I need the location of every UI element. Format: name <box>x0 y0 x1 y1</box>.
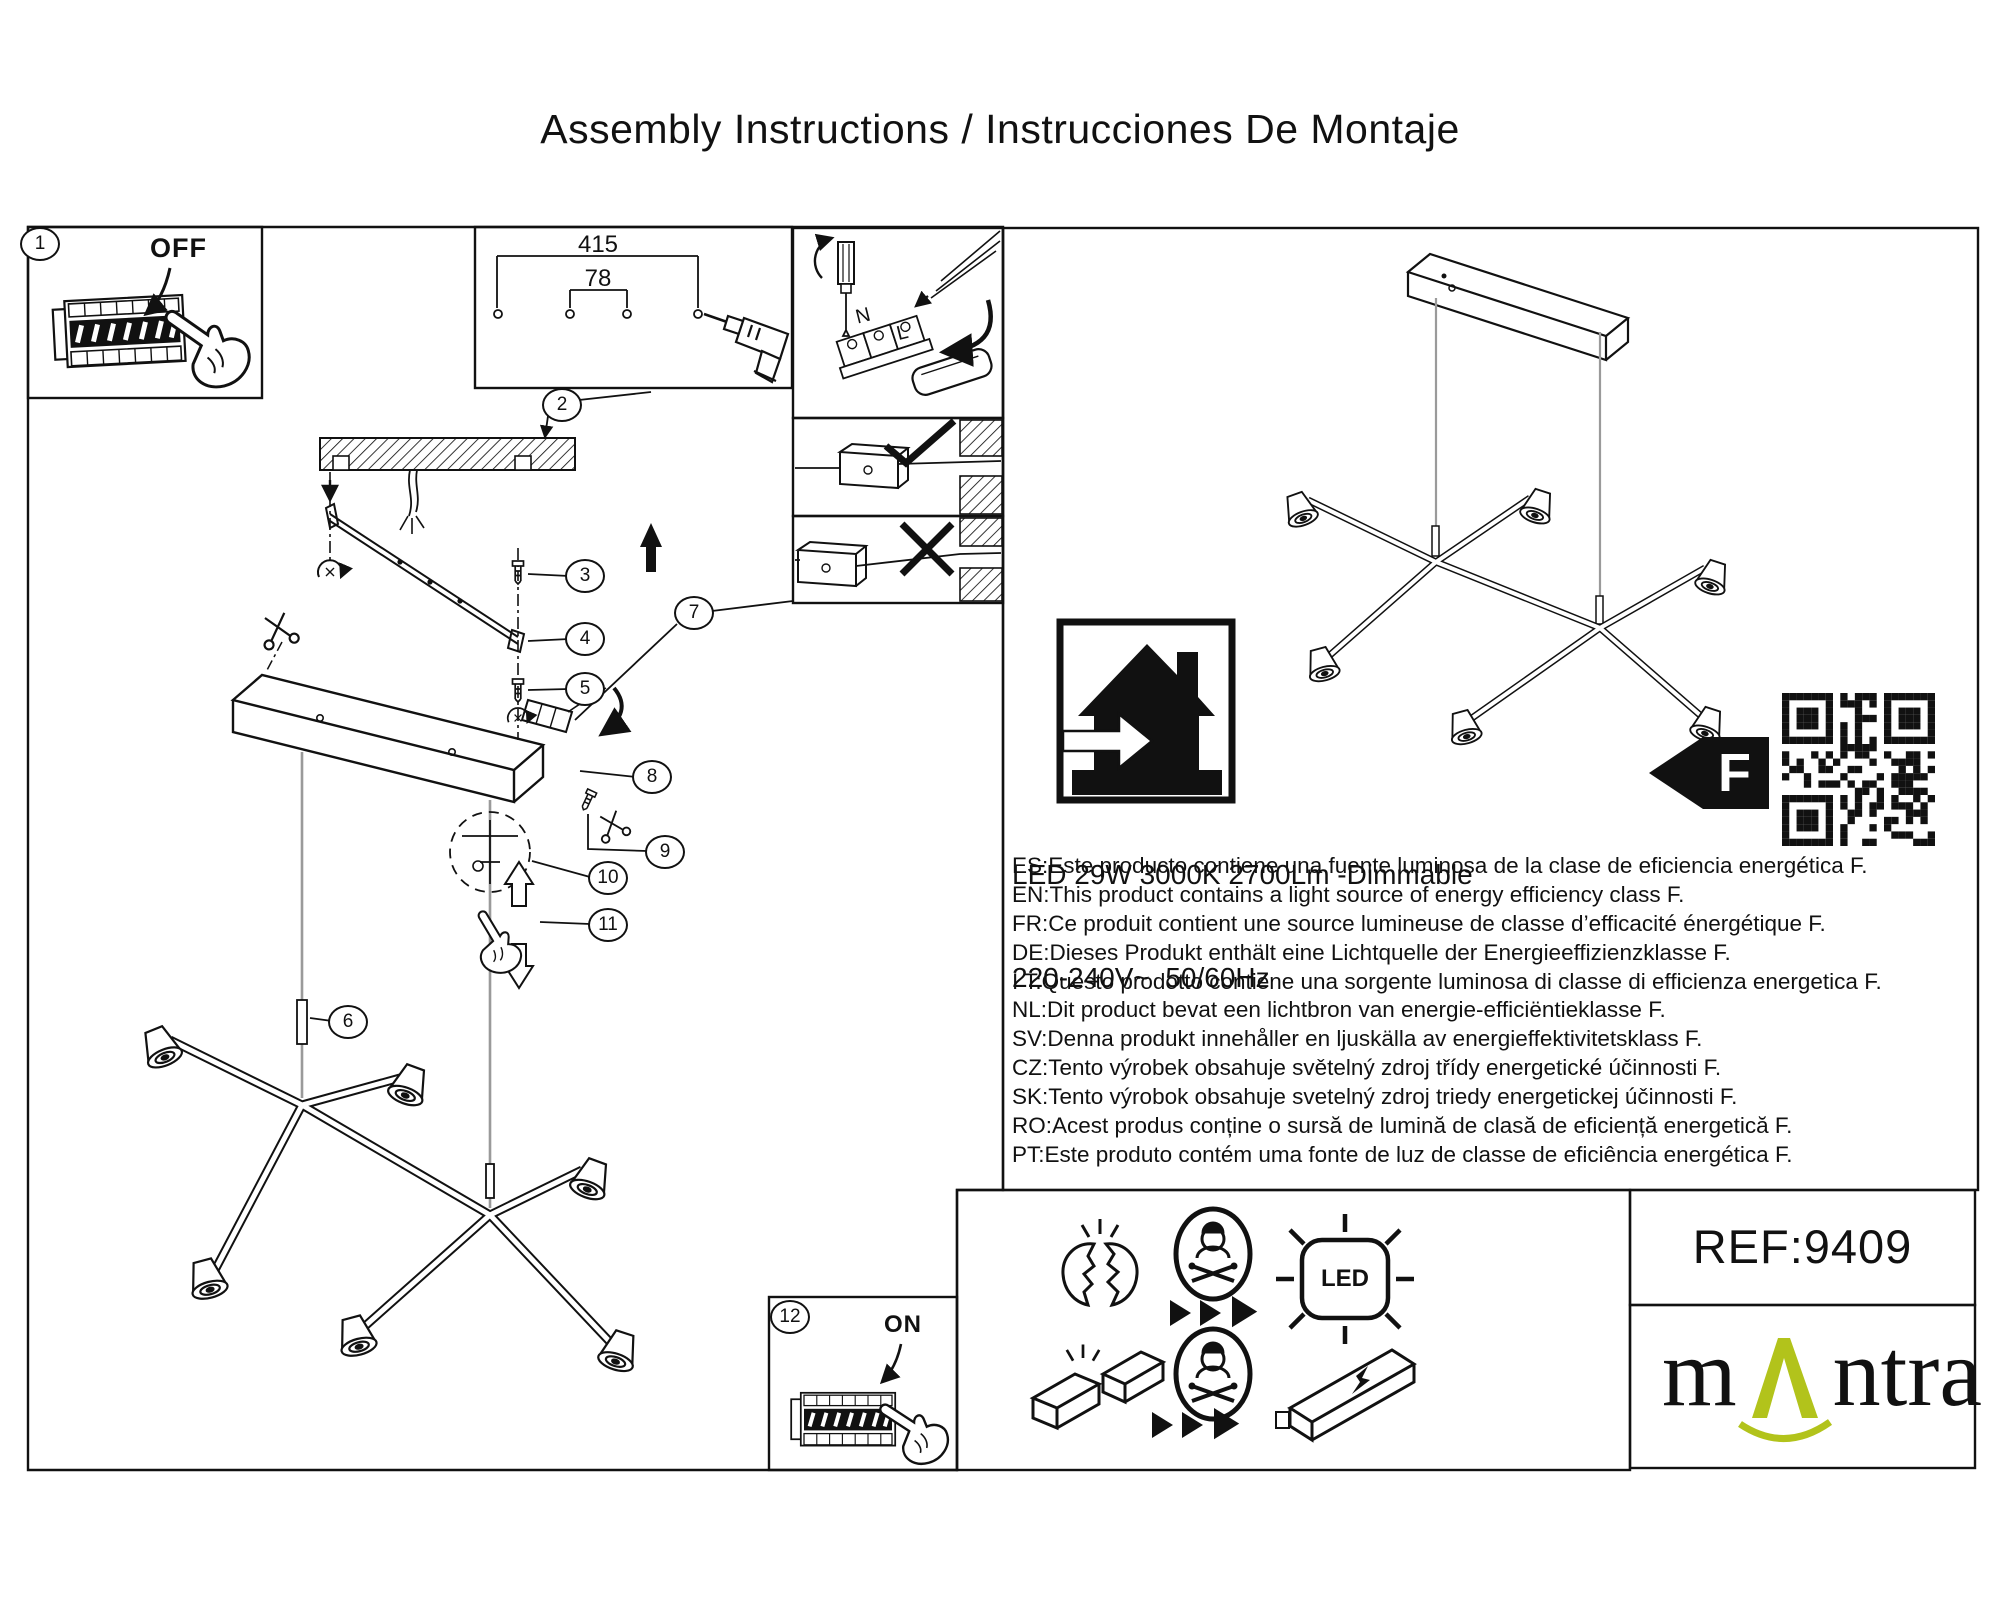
connector-box-icon <box>840 444 908 488</box>
lang-line-cz: CZ:Tento výrobek obsahuje světelný zdroj… <box>1012 1054 1967 1083</box>
assembly-diagram-panel-border <box>28 227 1003 1470</box>
suspension-cables <box>297 752 533 1208</box>
screwdriver-icon <box>815 238 854 336</box>
dimension-inner: 78 <box>578 264 618 294</box>
callout-4-badge: 4 <box>565 622 605 656</box>
lang-line-sv: SV:Denna produkt innehåller en ljuskälla… <box>1012 1025 1967 1054</box>
cable-rod-left <box>297 1000 307 1044</box>
lang-line-sk: SK:Tento výrobok obsahuje svetelný zdroj… <box>1012 1083 1967 1112</box>
reference-number: REF:9409 <box>1630 1190 1975 1305</box>
energy-statements: ES:Este producto contiene una fuente lum… <box>1012 852 1967 1170</box>
step-12-badge: 12 <box>770 1300 810 1334</box>
lang-line-es: ES:Este producto contiene una fuente lum… <box>1012 852 1967 881</box>
brand-prefix: m <box>1662 1330 1737 1416</box>
terminal-cover-icon <box>910 346 995 397</box>
qr-code-icon <box>1782 693 1935 846</box>
lang-line-it: I T:Questo prodotto contiene una sorgent… <box>1012 968 1967 997</box>
wrong-mounting-inset <box>795 518 1002 601</box>
callout-7-badge: 7 <box>674 596 714 630</box>
driver-box-icon <box>1276 1350 1414 1440</box>
brand-logo: m ntra <box>1662 1330 1982 1416</box>
callout-9-badge: 9 <box>645 835 685 869</box>
x-mark-icon <box>902 524 952 574</box>
check-mark-icon <box>886 421 954 463</box>
drill-icon <box>704 314 788 382</box>
product-render <box>1280 254 1732 747</box>
qualified-person-icon <box>1176 1329 1250 1419</box>
up-arrow-icon <box>640 523 662 572</box>
off-label: OFF <box>150 232 207 266</box>
callout-2-badge: 2 <box>542 388 582 422</box>
connector-box-icon <box>798 542 866 586</box>
broken-lamp-icon <box>1063 1219 1137 1305</box>
wiring-inset-drawing <box>815 231 1000 398</box>
brand-suffix: ntra <box>1833 1330 1982 1416</box>
drill-template-panel-border <box>475 227 792 388</box>
mounting-bracket-drawing <box>318 472 528 740</box>
broken-driver-icon <box>1033 1345 1163 1429</box>
callout-8-badge: 8 <box>632 760 672 794</box>
lang-line-de: DE:Dieses Produkt enthält eine Lichtquel… <box>1012 939 1967 968</box>
callout-10-badge: 10 <box>588 861 628 895</box>
on-label: ON <box>884 1310 922 1340</box>
lang-line-ro: RO:Acest produs conține o sursă de lumin… <box>1012 1112 1967 1141</box>
led-icon-label: LED <box>1302 1240 1388 1318</box>
step-1-badge: 1 <box>20 227 60 261</box>
drill-template-drawing <box>494 256 788 382</box>
correct-mounting-inset <box>795 420 1002 514</box>
lang-line-nl: NL:Dit product bevat een lichtbron van e… <box>1012 996 1967 1025</box>
callout-11-badge: 11 <box>588 908 628 942</box>
callout-5-badge: 5 <box>565 672 605 706</box>
lang-line-en: EN:This product contains a light source … <box>1012 881 1967 910</box>
lang-line-fr: FR:Ce produit contient une source lumine… <box>1012 910 1967 939</box>
page-title: Assembly Instructions / Instrucciones De… <box>0 104 2000 155</box>
fixture-drawing <box>137 1023 642 1375</box>
indoor-use-icon <box>1060 622 1232 800</box>
energy-class-arrow-icon <box>1649 737 1769 809</box>
qualified-person-icon <box>1176 1209 1250 1299</box>
breaker-off-icon <box>52 268 252 392</box>
arrow-up-icon <box>505 862 533 906</box>
cable-rod-right <box>486 1164 494 1198</box>
callout-3-badge: 3 <box>565 559 605 593</box>
ceiling-drawing <box>320 438 575 534</box>
breaker-on-icon <box>791 1344 951 1469</box>
dimension-outer: 415 <box>568 230 628 260</box>
instruction-sheet: Assembly Instructions / Instrucciones De… <box>0 0 2000 1600</box>
energy-class-letter: F <box>1718 740 1751 808</box>
lang-line-pt: PT:Este produto contém uma fonte de luz … <box>1012 1141 1967 1170</box>
callout-6-badge: 6 <box>328 1005 368 1039</box>
